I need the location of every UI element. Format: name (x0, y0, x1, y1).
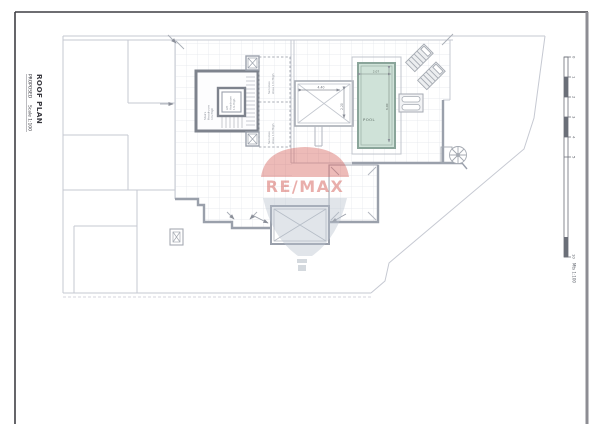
remax-watermark: RE/MAX (261, 147, 349, 271)
scale-tick-1: 1 (572, 76, 577, 79)
scale-tick-3: 3 (572, 116, 577, 119)
scale-tick-4: 4 (572, 136, 577, 139)
stairs-label-line3: 1m High (210, 108, 214, 120)
scale-tick-10: 10 (572, 254, 577, 259)
balloon-bottom-icon (263, 198, 347, 256)
skylight-width-dim: 4.40 (318, 86, 325, 90)
pool-area: 2.07 6.00 POOL (352, 57, 401, 154)
roof-plan-canvas: Stairs Headroom 1m High Lift Headroom 1m… (0, 0, 600, 424)
scale-unit-label: Mts 1:100 (572, 263, 577, 283)
title-scale: Scale 1:100 (27, 105, 33, 131)
page-title: ROOF PLAN (35, 74, 44, 124)
title-status: PROPOSED (27, 74, 33, 99)
balloon-basket-icon (297, 259, 307, 263)
deck-table-icon (399, 94, 423, 112)
remax-brand-text: RE/MAX (266, 177, 345, 196)
scale-tick-0: 0 (572, 56, 577, 59)
spiral-stair-icon (441, 147, 467, 164)
balloon-basket-icon (298, 265, 306, 271)
pool-length-dim: 6.00 (385, 103, 389, 110)
stair-core: Stairs Headroom 1m High Lift Headroom 1m… (196, 71, 258, 131)
roof-drain-icon (170, 229, 183, 245)
title-block: ROOF PLAN PROPOSED Scale 1:100 (27, 74, 45, 132)
services-top-line2: Area 1m High (271, 73, 275, 94)
services-bottom-line2: Area 1m High (271, 123, 275, 144)
lift-label-line3: 1m High (232, 98, 236, 110)
scale-tick-2: 2 (572, 96, 577, 99)
pool-basin (358, 63, 395, 148)
drawing-sheet: Stairs Headroom 1m High Lift Headroom 1m… (0, 0, 600, 424)
scale-tick-5: 5 (572, 156, 577, 159)
pool-width-dim: 2.07 (373, 70, 380, 74)
scale-bar: 0 1 2 3 4 5 10 Mts 1:100 (564, 56, 577, 283)
pool-label: POOL (363, 117, 375, 122)
skylight-height-dim: 2.20 (340, 103, 344, 110)
